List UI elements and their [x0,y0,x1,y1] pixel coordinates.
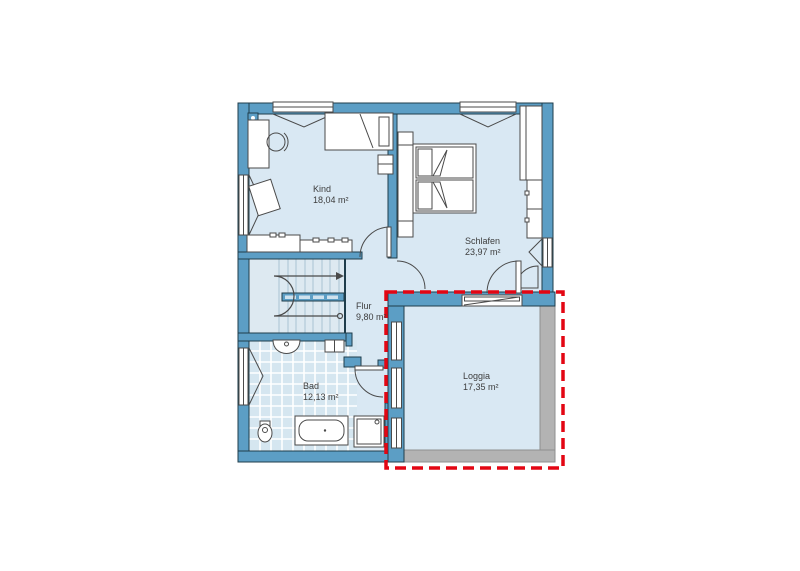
wall-bottom [238,451,404,462]
bathtub-icon [295,416,348,445]
floor-plan-image: Kind 18,04 m² Schlafen 23,97 m² Flur 9,8… [0,0,800,571]
room-name: Schlafen [465,236,501,247]
room-area: 18,04 m² [313,195,349,206]
room-label-kind: Kind 18,04 m² [313,184,349,206]
toilet-icon [258,421,272,442]
bedside-shelf-icon [378,155,393,174]
window-loggia-wall-panels [392,322,402,448]
room-label-flur: Flur 9,80 m² [356,301,387,323]
desk-icon [248,120,269,168]
wall-stairs-bad-cap [346,333,352,346]
room-area: 9,80 m² [356,312,387,323]
floor-plan-drawing [0,0,800,571]
wall-kind-bottom [238,252,362,259]
room-name: Loggia [463,371,499,382]
single-bed-icon [325,113,393,150]
room-area: 23,97 m² [465,247,501,258]
shower-icon [354,416,384,447]
room-area: 17,35 m² [463,382,499,393]
door-loggia-top-panel [462,295,522,306]
staircase [246,258,345,335]
room-label-loggia: Loggia 17,35 m² [463,371,499,393]
room-area: 12,13 m² [303,392,339,403]
room-label-schlafen: Schlafen 23,97 m² [465,236,501,258]
room-name: Flur [356,301,387,312]
room-name: Bad [303,381,339,392]
room-label-bad: Bad 12,13 m² [303,381,339,403]
room-name: Kind [313,184,349,195]
wall-left [238,103,249,462]
bath-cabinet-icon [325,340,344,352]
